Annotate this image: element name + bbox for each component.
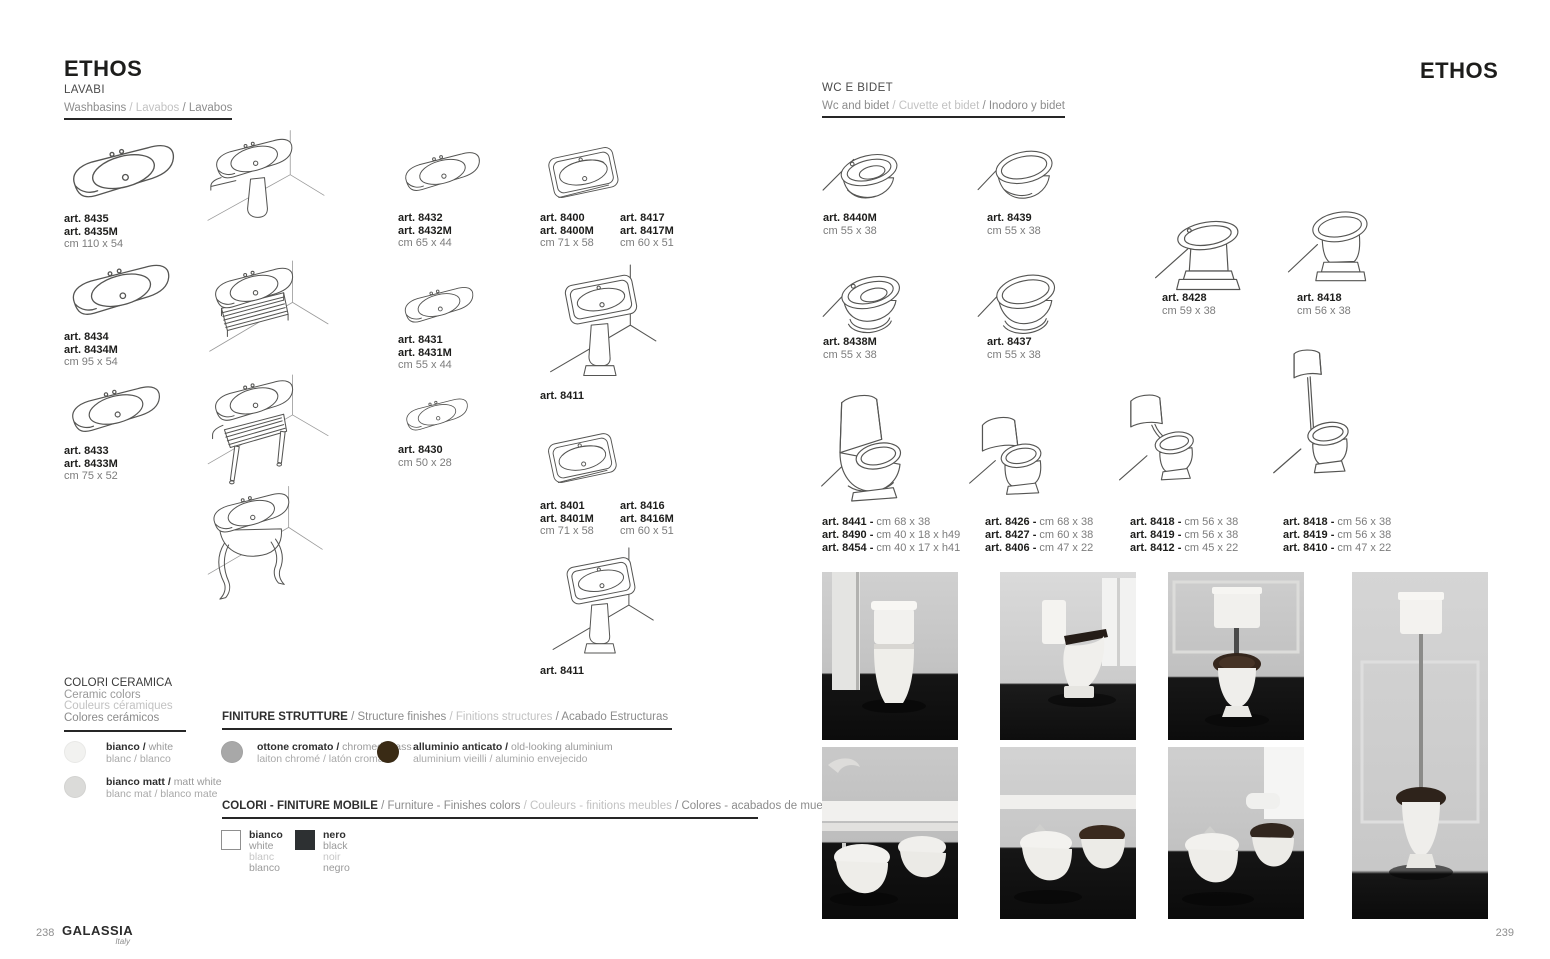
chromed-brass-swatch-circle bbox=[221, 741, 243, 763]
subtitle-en: Wc and bidet bbox=[822, 100, 892, 112]
art-label: art. 8430 bbox=[398, 444, 452, 457]
art-label: art. 8432 bbox=[398, 212, 452, 225]
swatch-name-en: matt white bbox=[174, 776, 222, 788]
ceramic-colors-title-es: Colores cerámicos bbox=[64, 713, 186, 725]
furniture-color-line: negro bbox=[323, 863, 350, 874]
art-label: art. 8441 - bbox=[822, 516, 876, 528]
swatch-name-en: old-looking aluminium bbox=[511, 741, 613, 753]
brand-logo: GALASSIA Italy bbox=[62, 925, 132, 946]
art-label: art. 8410 - bbox=[1283, 542, 1337, 554]
product-8418: art. 8418 cm 56 x 38 bbox=[1297, 292, 1351, 318]
furniture-bianco-square bbox=[221, 830, 241, 850]
subtitle-es: / Lavabos bbox=[182, 102, 232, 114]
drawing-washbasin-8435 bbox=[66, 138, 181, 211]
product-8433: art. 8433 art. 8433M cm 75 x 52 bbox=[64, 445, 118, 483]
product-8435: art. 8435 art. 8435M cm 110 x 54 bbox=[64, 213, 123, 251]
dim-label: cm 59 x 38 bbox=[1162, 305, 1216, 318]
product-8434: art. 8434 art. 8434M cm 95 x 54 bbox=[64, 331, 118, 369]
brand-country: Italy bbox=[62, 937, 130, 946]
product-8416: art. 8416 art. 8416M cm 60 x 51 bbox=[620, 500, 674, 538]
art-label: art. 8412 - bbox=[1130, 542, 1184, 554]
product-8401: art. 8401 art. 8401M cm 71 x 58 bbox=[540, 500, 594, 538]
photo-scene bbox=[1000, 572, 1136, 740]
drawing-sink-8401 bbox=[538, 428, 626, 491]
dim-label: cm 60 x 38 bbox=[1039, 529, 1093, 541]
drawing-bidet-wall-8440M bbox=[820, 144, 912, 207]
dim-label: cm 75 x 52 bbox=[64, 470, 118, 483]
art-label: art. 8439 bbox=[987, 212, 1041, 225]
art-label: art. 8401M bbox=[540, 513, 594, 526]
drawing-wc-monoblock bbox=[820, 386, 910, 511]
product-8431: art. 8431 art. 8431M cm 55 x 44 bbox=[398, 334, 452, 372]
swatch-line2: blanc / blanco bbox=[106, 754, 173, 766]
photo-wc-high-tank bbox=[1352, 572, 1488, 919]
drawing-washbasin-8430 bbox=[402, 394, 472, 439]
drawing-wc-wall-8439 bbox=[975, 142, 1067, 205]
heading-en: / Structure finishes bbox=[351, 711, 449, 723]
ceramic-colors-title-it: COLORI CERAMICA bbox=[64, 678, 186, 690]
product-group-8418-high: art. 8418 - cm 56 x 38 art. 8419 - cm 56… bbox=[1283, 516, 1391, 556]
product-8411-a: art. 8411 bbox=[540, 390, 584, 403]
drawing-bidet-floor-8438M bbox=[820, 264, 915, 337]
art-label: art. 8406 - bbox=[985, 542, 1039, 554]
drawing-wc-close-coupled bbox=[968, 398, 1058, 504]
photo-wc-mid-tank-front bbox=[1168, 572, 1304, 740]
furniture-nero-square bbox=[295, 830, 315, 850]
product-8411-b: art. 8411 bbox=[540, 665, 584, 678]
swatch-name: ottone cromato / bbox=[257, 741, 342, 753]
heading-it: FINITURE STRUTTURE bbox=[222, 711, 351, 723]
art-label: art. 8401 bbox=[540, 500, 594, 513]
ceramic-colors-block: COLORI CERAMICA Ceramic colors Couleurs … bbox=[64, 678, 186, 732]
dim-label: cm 55 x 38 bbox=[987, 225, 1041, 238]
page-number-right: 239 bbox=[1480, 927, 1514, 939]
product-8437: art. 8437 cm 55 x 38 bbox=[987, 336, 1041, 362]
photo-wc-monoblock-front bbox=[822, 572, 958, 740]
dim-label: cm 68 x 38 bbox=[1039, 516, 1093, 528]
dim-label: cm 56 x 38 bbox=[1184, 529, 1238, 541]
page-title-right: ETHOS bbox=[1420, 58, 1486, 84]
dim-label: cm 55 x 38 bbox=[987, 349, 1041, 362]
swatch-name: bianco matt / bbox=[106, 776, 174, 788]
photo-scene bbox=[822, 572, 958, 740]
art-label: art. 8434M bbox=[64, 344, 118, 357]
product-group-8418-mid: art. 8418 - cm 56 x 38 art. 8419 - cm 56… bbox=[1130, 516, 1238, 556]
dim-label: cm 55 x 38 bbox=[823, 349, 877, 362]
product-8438M: art. 8438M cm 55 x 38 bbox=[823, 336, 877, 362]
swatch-line2: aluminium vieilli / aluminio envejecido bbox=[413, 754, 613, 766]
section-title: WC E BIDET bbox=[822, 82, 1065, 94]
subtitle-fr: / Lavabos bbox=[129, 102, 182, 114]
swatch-furniture-bianco: bianco white blanc blanco bbox=[221, 830, 283, 874]
art-label: art. 8418 bbox=[1297, 292, 1351, 305]
dim-label: cm 56 x 38 bbox=[1297, 305, 1351, 318]
swatch-line2: blanc mat / blanco mate bbox=[106, 789, 222, 801]
subtitle-es: / Inodoro y bidet bbox=[982, 100, 1064, 112]
swatch-name: alluminio anticato / bbox=[413, 741, 511, 753]
dim-label: cm 55 x 44 bbox=[398, 359, 452, 372]
page-title-left: ETHOS bbox=[64, 56, 142, 82]
product-8417: art. 8417 art. 8417M cm 60 x 51 bbox=[620, 212, 674, 250]
swatch-bianco-matt: bianco matt / matt white blanc mat / bla… bbox=[64, 776, 222, 800]
section-header-washbasins: LAVABI Washbasins / Lavabos / Lavabos bbox=[64, 84, 232, 120]
drawing-console-rack bbox=[202, 258, 332, 369]
drawing-washbasin-8434 bbox=[66, 258, 176, 328]
art-label: art. 8433 bbox=[64, 445, 118, 458]
photo-scene bbox=[1000, 747, 1136, 919]
brand-name: GALASSIA bbox=[62, 925, 132, 937]
heading-fr: / Couleurs - finitions meubles bbox=[524, 800, 675, 812]
subtitle-fr: / Cuvette et bidet bbox=[892, 100, 982, 112]
drawing-console-vanity bbox=[202, 482, 327, 632]
drawing-wc-high-tank bbox=[1272, 340, 1367, 502]
drawing-console-pedestal bbox=[202, 126, 327, 244]
swatch-furniture-nero: nero black noir negro bbox=[295, 830, 350, 874]
swatch-old-aluminium: alluminio anticato / old-looking alumini… bbox=[377, 741, 613, 765]
drawing-washbasin-8431 bbox=[400, 282, 478, 332]
art-label: art. 8427 - bbox=[985, 529, 1039, 541]
drawing-sink-8400 bbox=[538, 142, 628, 206]
art-label: art. 8417M bbox=[620, 225, 674, 238]
dim-label: cm 71 x 58 bbox=[540, 237, 594, 250]
art-label: art. 8437 bbox=[987, 336, 1041, 349]
art-label: art. 8440M bbox=[823, 212, 877, 225]
drawing-console-legs bbox=[202, 372, 332, 489]
art-label: art. 8411 bbox=[540, 390, 584, 403]
heading-es: / Acabado Estructuras bbox=[556, 711, 669, 723]
art-label: art. 8438M bbox=[823, 336, 877, 349]
art-label: art. 8433M bbox=[64, 458, 118, 471]
art-label: art. 8411 bbox=[540, 665, 584, 678]
swatch-name: bianco / bbox=[106, 741, 149, 753]
product-8439: art. 8439 cm 55 x 38 bbox=[987, 212, 1041, 238]
dim-label: cm 110 x 54 bbox=[64, 238, 123, 251]
product-group-8426: art. 8426 - cm 68 x 38 art. 8427 - cm 60… bbox=[985, 516, 1093, 556]
dim-label: cm 55 x 38 bbox=[823, 225, 877, 238]
dim-label: cm 60 x 51 bbox=[620, 237, 674, 250]
art-label: art. 8416 bbox=[620, 500, 674, 513]
art-label: art. 8431 bbox=[398, 334, 452, 347]
dim-label: cm 47 x 22 bbox=[1039, 542, 1093, 554]
art-label: art. 8454 - bbox=[822, 542, 876, 554]
product-8428: art. 8428 cm 59 x 38 bbox=[1162, 292, 1216, 318]
art-label: art. 8400M bbox=[540, 225, 594, 238]
bianco-swatch-circle bbox=[64, 741, 86, 763]
art-label: art. 8431M bbox=[398, 347, 452, 360]
dim-label: cm 60 x 51 bbox=[620, 525, 674, 538]
ceramic-colors-title-fr: Couleurs céramiques bbox=[64, 701, 186, 713]
photo-scene bbox=[1168, 572, 1304, 740]
page-right: ETHOS WC E BIDET Wc and bidet / Cuvette … bbox=[775, 0, 1550, 959]
drawing-washbasin-8433 bbox=[66, 380, 166, 444]
dim-label: cm 68 x 38 bbox=[876, 516, 930, 528]
art-label: art. 8418 - bbox=[1130, 516, 1184, 528]
photo-scene bbox=[1352, 572, 1488, 919]
product-8400: art. 8400 art. 8400M cm 71 x 58 bbox=[540, 212, 594, 250]
photo-scene bbox=[822, 747, 958, 919]
catalog-spread: { "page_left": { "title": "ETHOS", "page… bbox=[0, 0, 1550, 959]
page-number-left: 238 bbox=[36, 927, 54, 939]
old-aluminium-swatch-circle bbox=[377, 741, 399, 763]
dim-label: cm 45 x 22 bbox=[1184, 542, 1238, 554]
heading-it: COLORI - FINITURE MOBILE bbox=[222, 800, 381, 812]
dim-label: cm 56 x 38 bbox=[1184, 516, 1238, 528]
structure-finishes-heading: FINITURE STRUTTURE / Structure finishes … bbox=[222, 711, 672, 730]
heading-fr: / Finitions structures bbox=[450, 711, 556, 723]
dim-label: cm 95 x 54 bbox=[64, 356, 118, 369]
drawing-washbasin-8432 bbox=[400, 146, 485, 202]
art-label: art. 8434 bbox=[64, 331, 118, 344]
art-label: art. 8417 bbox=[620, 212, 674, 225]
photo-scene bbox=[1168, 747, 1304, 919]
art-label: art. 8400 bbox=[540, 212, 594, 225]
art-label: art. 8416M bbox=[620, 513, 674, 526]
art-label: art. 8432M bbox=[398, 225, 452, 238]
swatch-name-en: white bbox=[149, 741, 174, 753]
art-label: art. 8426 - bbox=[985, 516, 1039, 528]
product-8430: art. 8430 cm 50 x 28 bbox=[398, 444, 452, 470]
art-label: art. 8490 - bbox=[822, 529, 876, 541]
photo-bidet-wc-dark-seat bbox=[1000, 747, 1136, 919]
section-subtitle: Washbasins / Lavabos / Lavabos bbox=[64, 102, 232, 120]
art-label: art. 8418 - bbox=[1283, 516, 1337, 528]
dim-label: cm 40 x 17 x h41 bbox=[876, 542, 960, 554]
photo-bidet-wc-window bbox=[1168, 747, 1304, 919]
drawing-wc-floor-8437 bbox=[975, 264, 1070, 337]
section-title: LAVABI bbox=[64, 84, 232, 96]
art-label: art. 8419 - bbox=[1283, 529, 1337, 541]
drawing-wc-classic-8418 bbox=[1285, 206, 1390, 296]
dim-label: cm 40 x 18 x h49 bbox=[876, 529, 960, 541]
dim-label: cm 56 x 38 bbox=[1337, 529, 1391, 541]
subtitle-en: Washbasins bbox=[64, 102, 129, 114]
art-label: art. 8435M bbox=[64, 226, 123, 239]
page-left: ETHOS LAVABI Washbasins / Lavabos / Lava… bbox=[0, 0, 775, 959]
drawing-wc-mid-tank bbox=[1118, 388, 1208, 501]
furniture-color-line: blanco bbox=[249, 863, 283, 874]
dim-label: cm 50 x 28 bbox=[398, 457, 452, 470]
art-label: art. 8419 - bbox=[1130, 529, 1184, 541]
furniture-finishes-heading: COLORI - FINITURE MOBILE / Furniture - F… bbox=[222, 800, 758, 819]
product-group-8441: art. 8441 - cm 68 x 38 art. 8490 - cm 40… bbox=[822, 516, 960, 556]
bianco-matt-swatch-circle bbox=[64, 776, 86, 798]
art-label: art. 8428 bbox=[1162, 292, 1216, 305]
section-subtitle: Wc and bidet / Cuvette et bidet / Inodor… bbox=[822, 100, 1065, 118]
section-header-wc-bidet: WC E BIDET Wc and bidet / Cuvette et bid… bbox=[822, 82, 1065, 118]
dim-label: cm 56 x 38 bbox=[1337, 516, 1391, 528]
art-label: art. 8435 bbox=[64, 213, 123, 226]
dim-label: cm 71 x 58 bbox=[540, 525, 594, 538]
dim-label: cm 47 x 22 bbox=[1337, 542, 1391, 554]
swatch-bianco: bianco / white blanc / blanco bbox=[64, 741, 173, 765]
drawing-pedestal-sink-8411-a bbox=[536, 262, 666, 386]
dim-label: cm 65 x 44 bbox=[398, 237, 452, 250]
product-8440M: art. 8440M cm 55 x 38 bbox=[823, 212, 877, 238]
product-8432: art. 8432 art. 8432M cm 65 x 44 bbox=[398, 212, 452, 250]
photo-wc-close-coupled-side bbox=[1000, 572, 1136, 740]
heading-en: / Furniture - Finishes colors bbox=[381, 800, 524, 812]
drawing-bidet-pedestal-8428 bbox=[1152, 212, 1262, 303]
drawing-pedestal-sink-8411-b bbox=[536, 545, 666, 663]
photo-bidet-wc-ornate bbox=[822, 747, 958, 919]
